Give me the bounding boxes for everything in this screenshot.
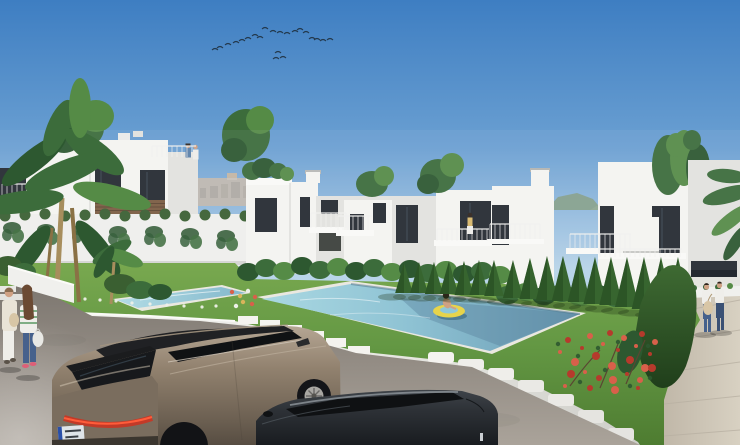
wall-coping bbox=[238, 316, 258, 324]
blossom bbox=[652, 339, 658, 345]
blossom bbox=[607, 330, 613, 336]
blossom bbox=[587, 333, 593, 339]
trousers bbox=[3, 330, 14, 360]
tote-bag bbox=[703, 301, 713, 315]
flower-dot bbox=[230, 290, 234, 294]
flower-dot bbox=[148, 302, 151, 305]
hood-emblem bbox=[480, 433, 483, 441]
leaf bbox=[616, 340, 620, 344]
blossom bbox=[611, 386, 619, 394]
blossom bbox=[625, 372, 629, 376]
person-jeans bbox=[716, 303, 724, 318]
blossom bbox=[563, 384, 567, 388]
blossom bbox=[639, 331, 645, 337]
blossom bbox=[596, 375, 602, 381]
leaf bbox=[646, 344, 650, 348]
blossom bbox=[571, 358, 579, 366]
flower-dot bbox=[246, 289, 250, 293]
shadow bbox=[710, 330, 732, 336]
blossom bbox=[601, 342, 605, 346]
shrub bbox=[148, 284, 172, 300]
blossom bbox=[580, 346, 584, 350]
jeans bbox=[23, 332, 29, 363]
blossom bbox=[637, 377, 643, 383]
flower-dot bbox=[83, 297, 86, 300]
leaf bbox=[603, 368, 607, 372]
leaf bbox=[576, 354, 580, 358]
flower-dot bbox=[165, 303, 168, 306]
flower-dot bbox=[214, 304, 217, 307]
blossom bbox=[636, 386, 640, 390]
leaf bbox=[556, 342, 560, 346]
leaf bbox=[628, 384, 632, 388]
flower-dot bbox=[250, 302, 254, 306]
shadow bbox=[0, 367, 21, 373]
blossom bbox=[587, 385, 593, 391]
blossom bbox=[567, 370, 575, 378]
pink-shoe bbox=[30, 362, 37, 366]
blossom bbox=[592, 352, 600, 360]
leaf bbox=[648, 376, 652, 380]
blossom bbox=[565, 337, 571, 343]
blossom bbox=[648, 364, 656, 372]
flower-dot bbox=[130, 301, 133, 304]
blossom bbox=[616, 348, 620, 352]
flower-dot bbox=[98, 298, 101, 301]
flower-dot bbox=[234, 304, 238, 308]
flower-dot bbox=[200, 305, 203, 308]
blossom bbox=[583, 370, 587, 374]
handbag bbox=[33, 331, 44, 347]
blossom bbox=[641, 364, 649, 372]
blossom bbox=[558, 350, 562, 354]
shadow bbox=[16, 375, 40, 381]
wall-coping bbox=[428, 352, 454, 363]
flower-dot bbox=[241, 300, 245, 304]
blossom bbox=[608, 362, 616, 370]
blossom bbox=[609, 376, 617, 384]
flower-dot bbox=[238, 294, 242, 298]
blossom bbox=[621, 335, 627, 341]
blossom bbox=[626, 356, 634, 364]
villa-complex-render bbox=[0, 0, 740, 445]
flower-dot bbox=[253, 295, 257, 299]
blossom bbox=[634, 344, 638, 348]
blossom bbox=[648, 352, 652, 356]
palm-leaf bbox=[69, 78, 91, 138]
leaf bbox=[632, 352, 636, 356]
leaf bbox=[578, 380, 582, 384]
leaf bbox=[596, 346, 600, 350]
render-canvas bbox=[0, 0, 740, 445]
pink-shoe bbox=[22, 364, 29, 368]
flower-dot bbox=[182, 304, 185, 307]
handbag bbox=[9, 313, 19, 327]
person-shirt bbox=[715, 289, 724, 303]
flower-dot bbox=[114, 299, 117, 302]
side-mirror bbox=[263, 411, 273, 417]
